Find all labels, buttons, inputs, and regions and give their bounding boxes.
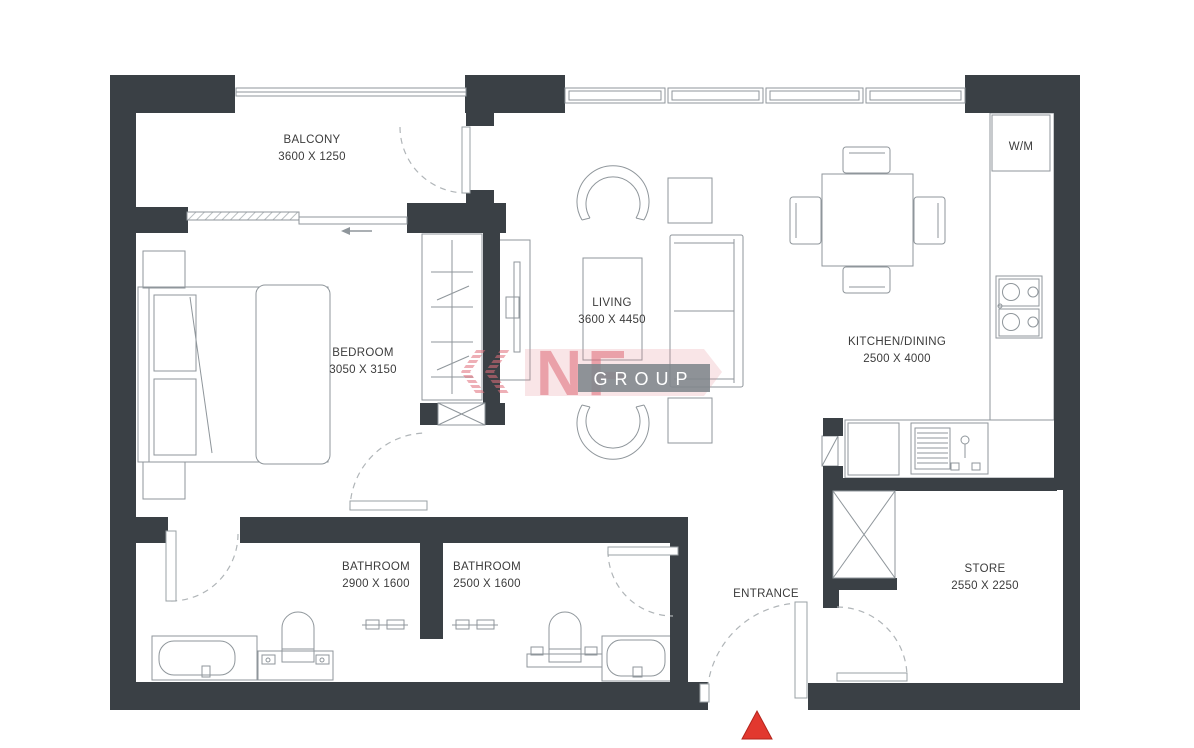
wall-top-mid-block — [465, 75, 565, 113]
bedroom-label: BEDROOM — [332, 347, 394, 359]
floor-plan-drawing: BALCONY 3600 X 1250 BEDROOM 3050 X 3150 … — [0, 0, 1194, 748]
duct-panel-icon — [822, 436, 838, 466]
bedroom-duct-icon — [438, 403, 485, 425]
washing-machine-label: W/M — [1009, 141, 1034, 153]
bathroom1-dims: 2900 X 1600 — [342, 578, 409, 590]
wall-right-lower — [1063, 488, 1080, 710]
wall-balcony-door-jamb-top — [466, 113, 494, 126]
wall-bottom-left — [110, 682, 708, 710]
store-dims: 2550 X 2250 — [951, 580, 1018, 592]
wall-right-upper — [1054, 75, 1080, 490]
bathroom2-dims: 2500 X 1600 — [453, 578, 520, 590]
watermark-group-text: GROUP — [593, 369, 694, 389]
wall-bath1-top-a — [136, 517, 168, 543]
wall-kitchen-stub-bottom — [823, 466, 843, 478]
wall-bath2-right — [670, 517, 688, 687]
kitchen-dining-label: KITCHEN/DINING — [848, 336, 946, 348]
service-shaft-icon — [833, 491, 895, 578]
balcony-label: BALCONY — [283, 134, 340, 146]
wall-shaft-bottom — [823, 578, 897, 590]
wall-store-door-stub — [823, 590, 839, 608]
kitchen-dining-dims: 2500 X 4000 — [863, 353, 930, 365]
living-label: LIVING — [592, 297, 632, 309]
wall-balcony-bottom-left — [118, 207, 188, 233]
wall-bath-top-b — [240, 517, 678, 543]
wall-shaft-left — [823, 491, 833, 578]
balcony-railing — [236, 88, 466, 96]
bathroom2-label: BATHROOM — [453, 561, 521, 573]
wall-bath-divider — [420, 517, 443, 639]
balcony-dims: 3600 X 1250 — [278, 151, 345, 163]
wall-stub-duct-right — [485, 403, 505, 425]
bathroom1-label: BATHROOM — [342, 561, 410, 573]
wall-left — [110, 75, 136, 710]
floor-plan-canvas: BALCONY 3600 X 1250 BEDROOM 3050 X 3150 … — [0, 0, 1194, 748]
entrance-label: ENTRANCE — [733, 588, 799, 600]
living-dims: 3600 X 4450 — [578, 314, 645, 326]
wall-store-top — [823, 478, 1057, 491]
wall-kitchen-stub-top — [823, 418, 843, 436]
wall-bottom-right — [808, 683, 1080, 710]
bedroom-dims: 3050 X 3150 — [329, 364, 396, 376]
store-label: STORE — [965, 563, 1006, 575]
wall-stub-duct-left — [420, 403, 438, 425]
